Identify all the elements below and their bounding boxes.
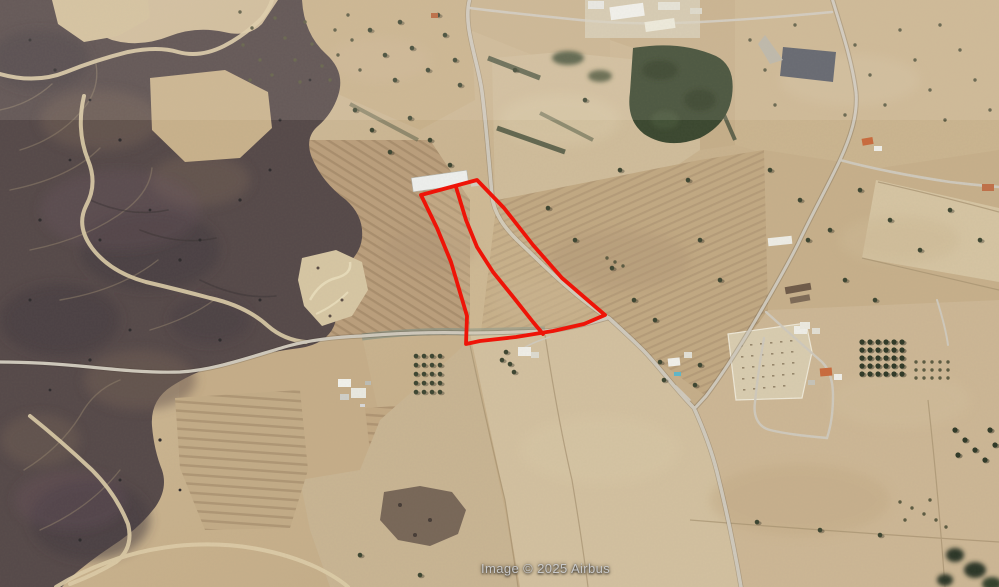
haze-overlay — [0, 0, 999, 120]
satellite-map — [0, 0, 999, 587]
map-viewport[interactable]: Image © 2025 Airbus — [0, 0, 999, 587]
imagery-attribution: Image © 2025 Airbus — [481, 561, 610, 576]
